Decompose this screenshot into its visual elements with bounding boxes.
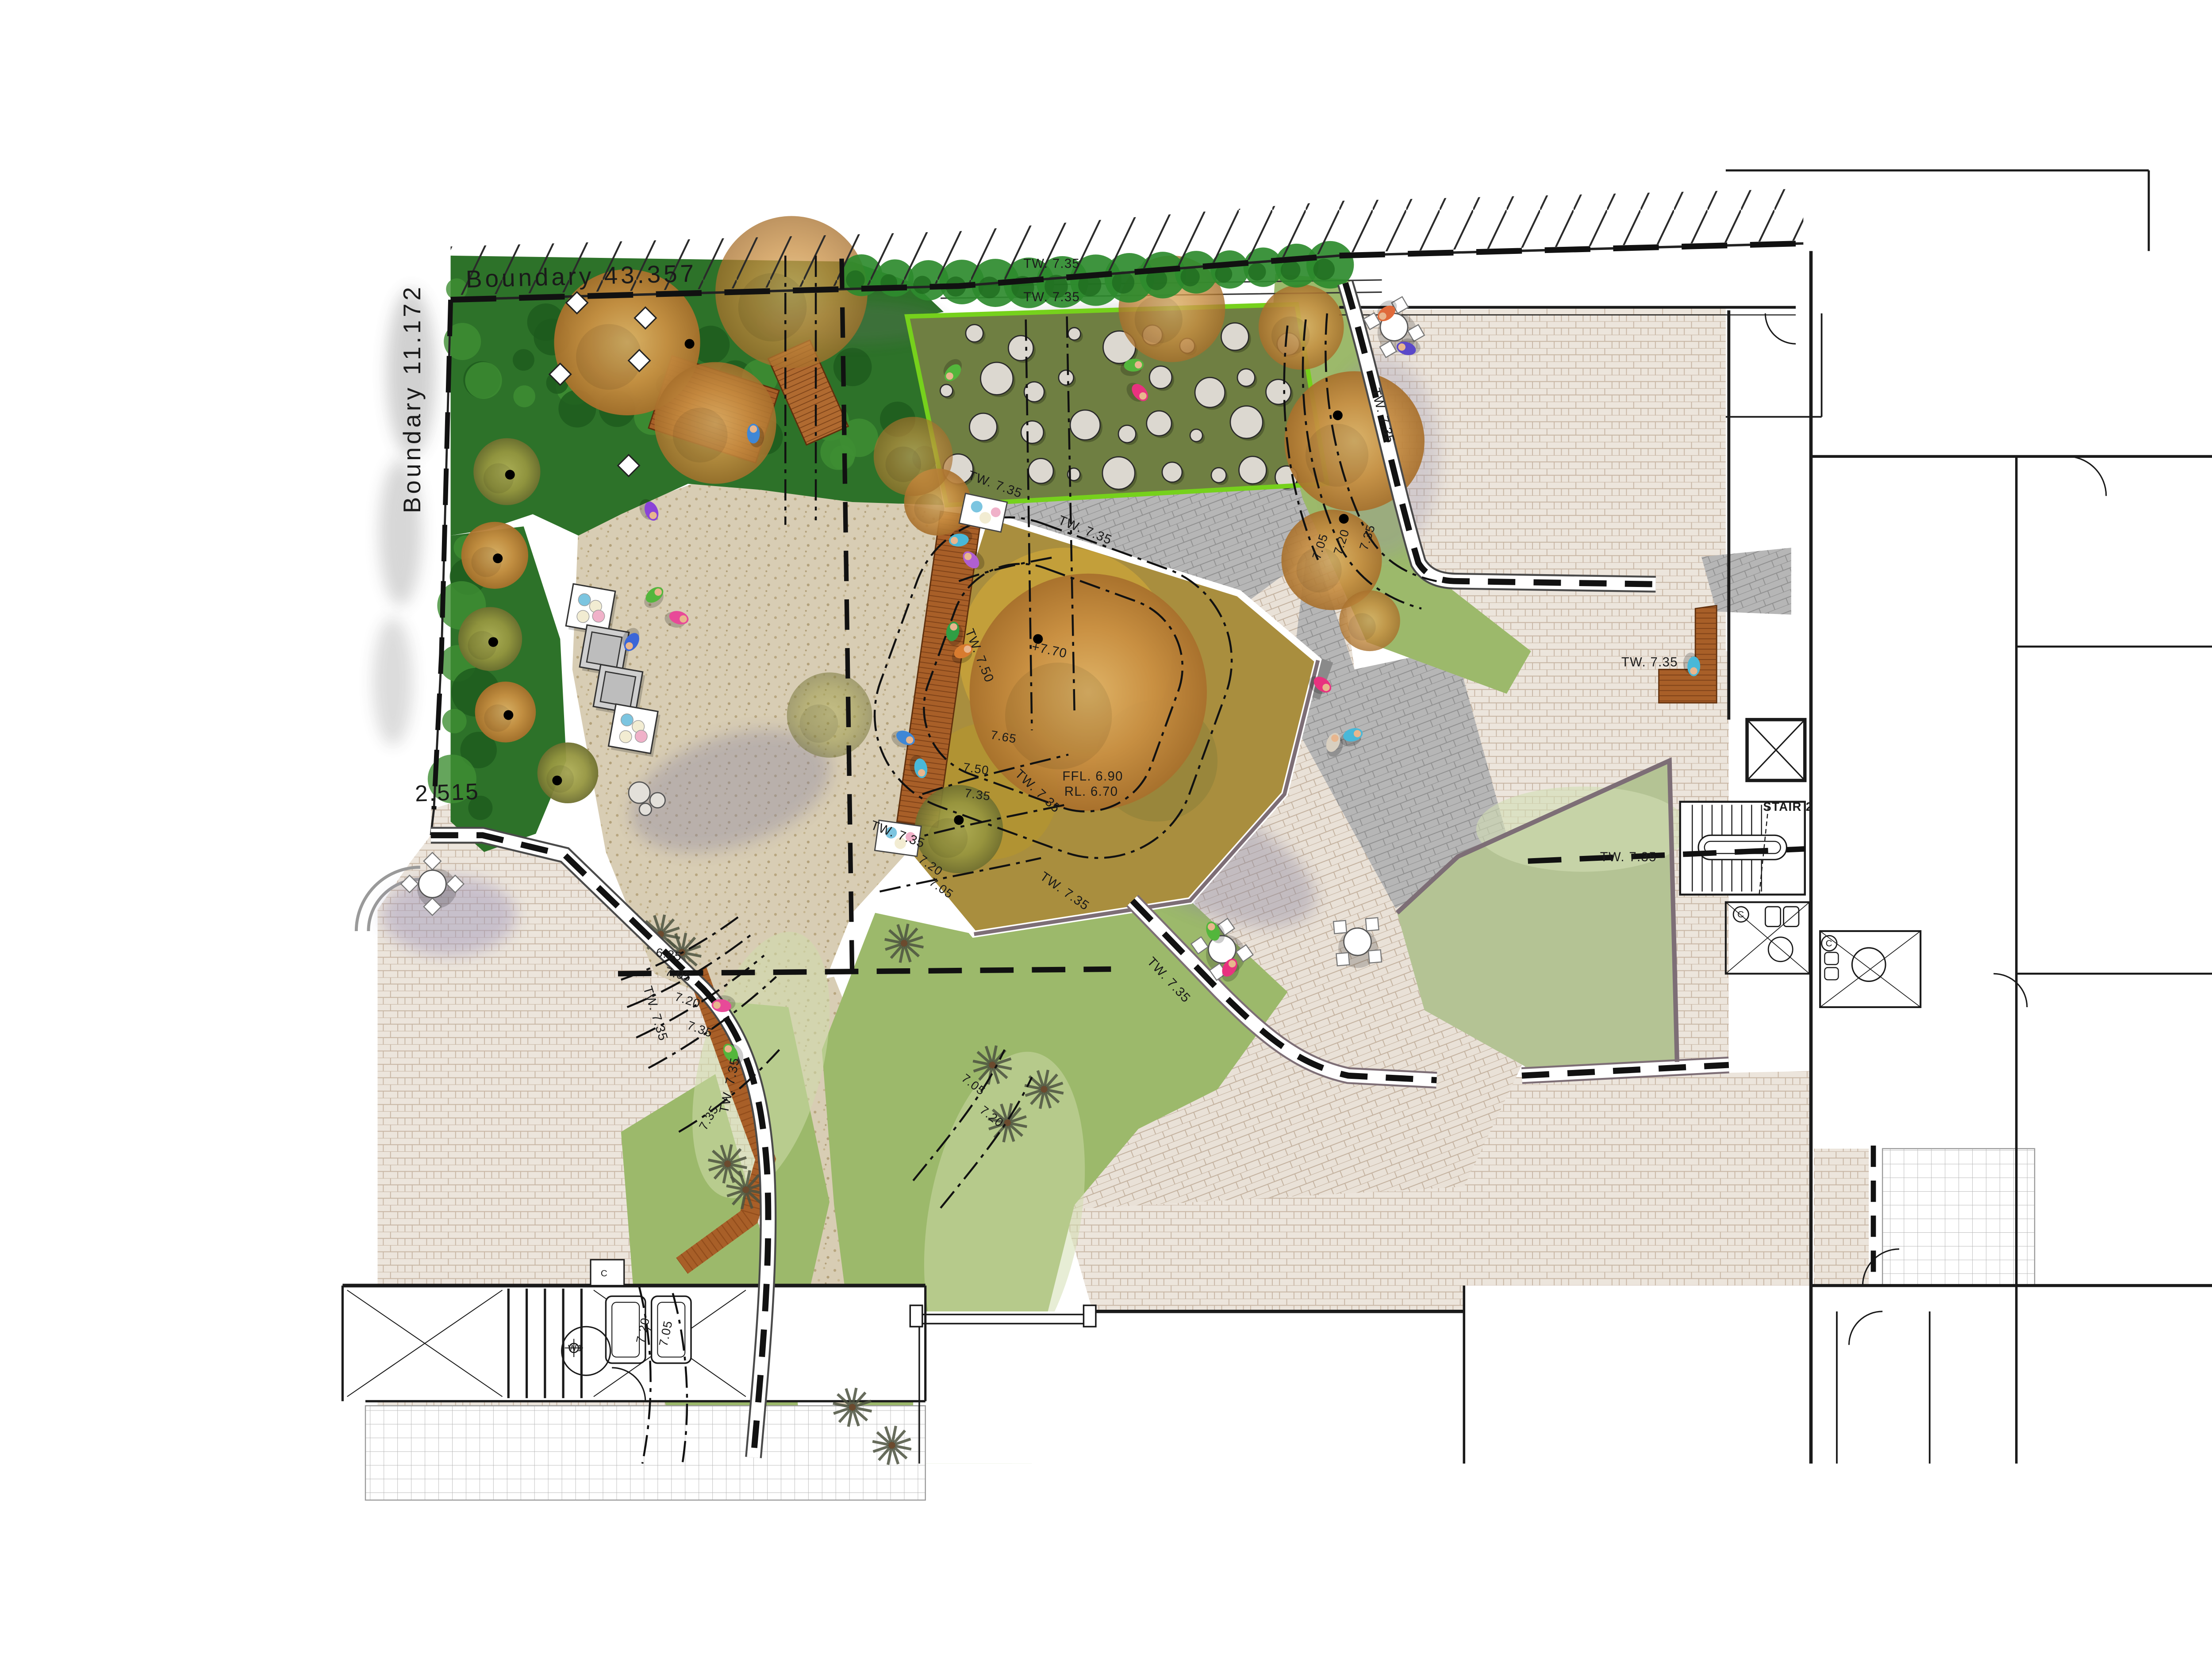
stair-core [1680, 802, 1805, 895]
stepping-stone [1190, 429, 1202, 441]
palm-center [888, 1442, 895, 1449]
chair [1366, 918, 1379, 931]
stepping-stone [1149, 366, 1172, 389]
level-annotation: TW. 7.35 [1600, 850, 1657, 864]
tree-canopy-shade [914, 494, 944, 524]
stepping-stone [969, 413, 997, 441]
stepping-stone [940, 384, 952, 397]
level-annotation: W1 [568, 1343, 583, 1353]
palm-center [901, 940, 907, 947]
building-bottom-right [1464, 1285, 2212, 1463]
tree-canopy-shade [1135, 295, 1183, 343]
hedge-shrub-shade [1313, 259, 1335, 280]
stepping-stone [1029, 458, 1053, 483]
tree-trunk-dot [505, 470, 515, 479]
shrub-tuft [442, 709, 467, 733]
stepping-stone [1147, 411, 1171, 436]
level-annotation: C [1826, 938, 1833, 948]
chair [1336, 953, 1349, 966]
hedge-shrub-shade [1248, 263, 1266, 280]
tree-trunk-dot [503, 710, 513, 720]
tree-trunk-dot [493, 553, 503, 563]
play-panel [608, 704, 661, 757]
tree-shadow [373, 617, 412, 745]
level-annotation: TW. 7.35 [1023, 257, 1080, 271]
tree-canopy-shade [800, 704, 838, 743]
site-plan-canvas: Boundary 43.357Boundary 11.1722.515TW. 7… [0, 0, 2212, 1672]
gray-wedge-lift [1701, 548, 1791, 614]
tree-canopy-shade [673, 408, 728, 463]
level-annotation: TW. 7.35 [1621, 655, 1678, 669]
chair [1333, 920, 1347, 934]
stepping-stone [1118, 425, 1136, 442]
building-bottom-center [913, 1312, 1464, 1464]
tree-canopy-shade [928, 818, 968, 858]
level-annotation: TW. 7.35 [1023, 290, 1080, 304]
person-head [750, 426, 757, 433]
granite-dot [639, 803, 652, 816]
stepping-stone [1070, 410, 1100, 440]
brick-strip-right [1814, 1149, 1869, 1286]
shrub-tuft [513, 349, 534, 371]
level-annotation: STAIR 2 [1763, 800, 1813, 813]
tree-trunk-dot [954, 815, 964, 825]
boundary-dash-left [434, 300, 451, 809]
stepping-stone [1237, 369, 1255, 386]
level-annotation: C [601, 1269, 608, 1279]
chair [1368, 950, 1382, 963]
stepping-stone [1211, 468, 1226, 483]
shrub-tuft [465, 362, 502, 399]
stepping-stone [1068, 328, 1080, 340]
tree-trunk-dot [488, 637, 498, 647]
stepping-stone [966, 325, 983, 342]
tile-balcony-right [1882, 1149, 2035, 1286]
level-annotation: RL. 6.70 [1064, 785, 1118, 799]
palm-center [849, 1404, 856, 1411]
palm-center [1041, 1086, 1047, 1093]
stepping-stone [1239, 456, 1267, 484]
stepping-stone [1221, 323, 1248, 350]
stepping-stone [1008, 336, 1033, 360]
tree-canopy-shade [1005, 663, 1112, 769]
tree-trunk-dot [1339, 514, 1349, 524]
tree-trunk-dot [552, 775, 562, 785]
tree-canopy-shade [1348, 613, 1376, 640]
stepping-stone [1230, 406, 1263, 438]
granite-dot [629, 782, 650, 803]
shrub-tuft [513, 385, 535, 407]
palm-center [742, 1186, 749, 1193]
stepping-stone [1195, 377, 1225, 407]
level-annotation: 2.515 [415, 778, 480, 806]
palm-center [724, 1161, 731, 1167]
level-annotation: C [1737, 909, 1744, 920]
tree-trunk-dot [1333, 410, 1343, 420]
sand-inset [600, 671, 636, 707]
level-annotation: FFL. 6.90 [1062, 769, 1123, 783]
hedge-shrub-shade [1281, 260, 1301, 280]
shrub-tuft [833, 348, 872, 386]
stepping-stone [1059, 370, 1074, 385]
stepping-stone [1162, 462, 1182, 482]
stepping-stone [1102, 457, 1135, 489]
hedge-shrub-shade [1180, 267, 1199, 286]
tree-trunk-dot [685, 339, 695, 349]
granite-dot [650, 793, 665, 808]
sand-inset [587, 632, 622, 667]
tree-canopy-shade [886, 446, 921, 482]
stepping-stone [1021, 421, 1044, 444]
table-top [419, 870, 446, 897]
lift-shaft [1747, 720, 1805, 781]
landscape-plan-sheet: Boundary 43.357Boundary 11.1722.515TW. 7… [0, 0, 2212, 1672]
level-annotation: Boundary 11.172 [398, 284, 426, 513]
stepping-stone [1266, 380, 1290, 404]
stepping-stone [980, 362, 1013, 395]
